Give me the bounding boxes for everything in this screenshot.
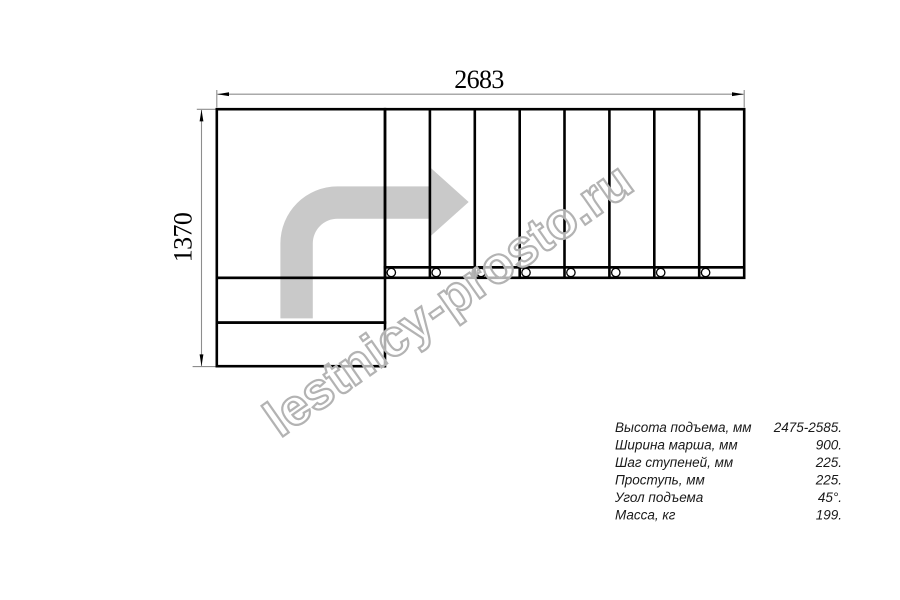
- svg-text:225.: 225.: [815, 473, 842, 488]
- svg-text:Высота подъема, мм: Высота подъема, мм: [615, 420, 751, 435]
- svg-text:Проступь, мм: Проступь, мм: [615, 473, 705, 488]
- svg-text:Угол подъема: Угол подъема: [614, 490, 704, 505]
- svg-text:Масса, кг: Масса, кг: [615, 508, 676, 523]
- svg-text:45°.: 45°.: [818, 490, 842, 505]
- svg-text:Шаг ступеней, мм: Шаг ступеней, мм: [615, 455, 733, 470]
- svg-text:1370: 1370: [169, 212, 198, 262]
- svg-text:199.: 199.: [816, 508, 842, 523]
- svg-text:2683: 2683: [454, 65, 504, 94]
- svg-text:Ширина марша, мм: Ширина марша, мм: [615, 438, 738, 453]
- svg-text:2475-2585.: 2475-2585.: [773, 420, 842, 435]
- svg-text:900.: 900.: [816, 438, 842, 453]
- svg-text:225.: 225.: [815, 455, 842, 470]
